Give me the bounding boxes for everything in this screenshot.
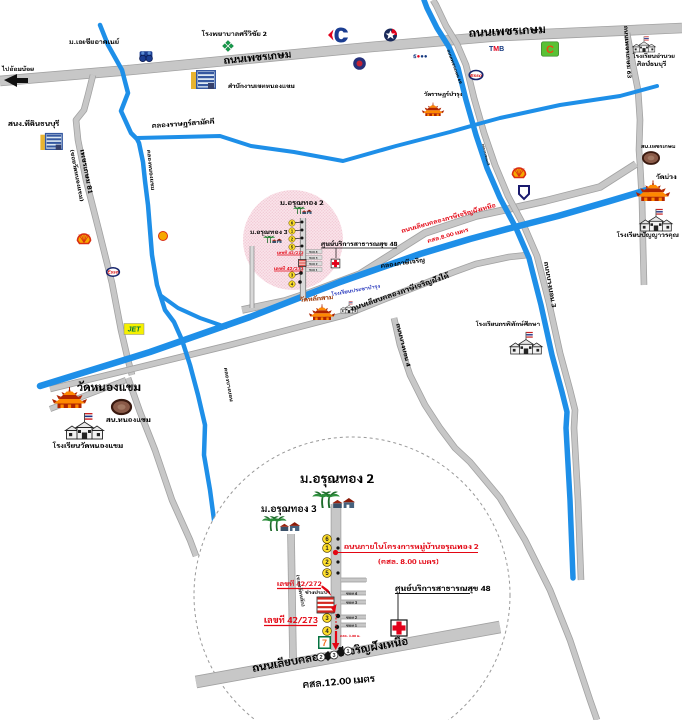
svg-text:ธ●●●: ธ●●● (413, 53, 428, 60)
svg-text:JET: JET (128, 327, 142, 334)
svg-text:TMB: TMB (489, 46, 504, 53)
svg-text:7: 7 (322, 638, 327, 648)
svg-text:Esso: Esso (470, 73, 482, 79)
svg-text:2: 2 (319, 655, 322, 661)
svg-text:1: 1 (346, 649, 349, 655)
svg-text:Esso: Esso (107, 270, 118, 275)
svg-text:3: 3 (332, 653, 335, 659)
svg-text:C: C (546, 44, 554, 56)
